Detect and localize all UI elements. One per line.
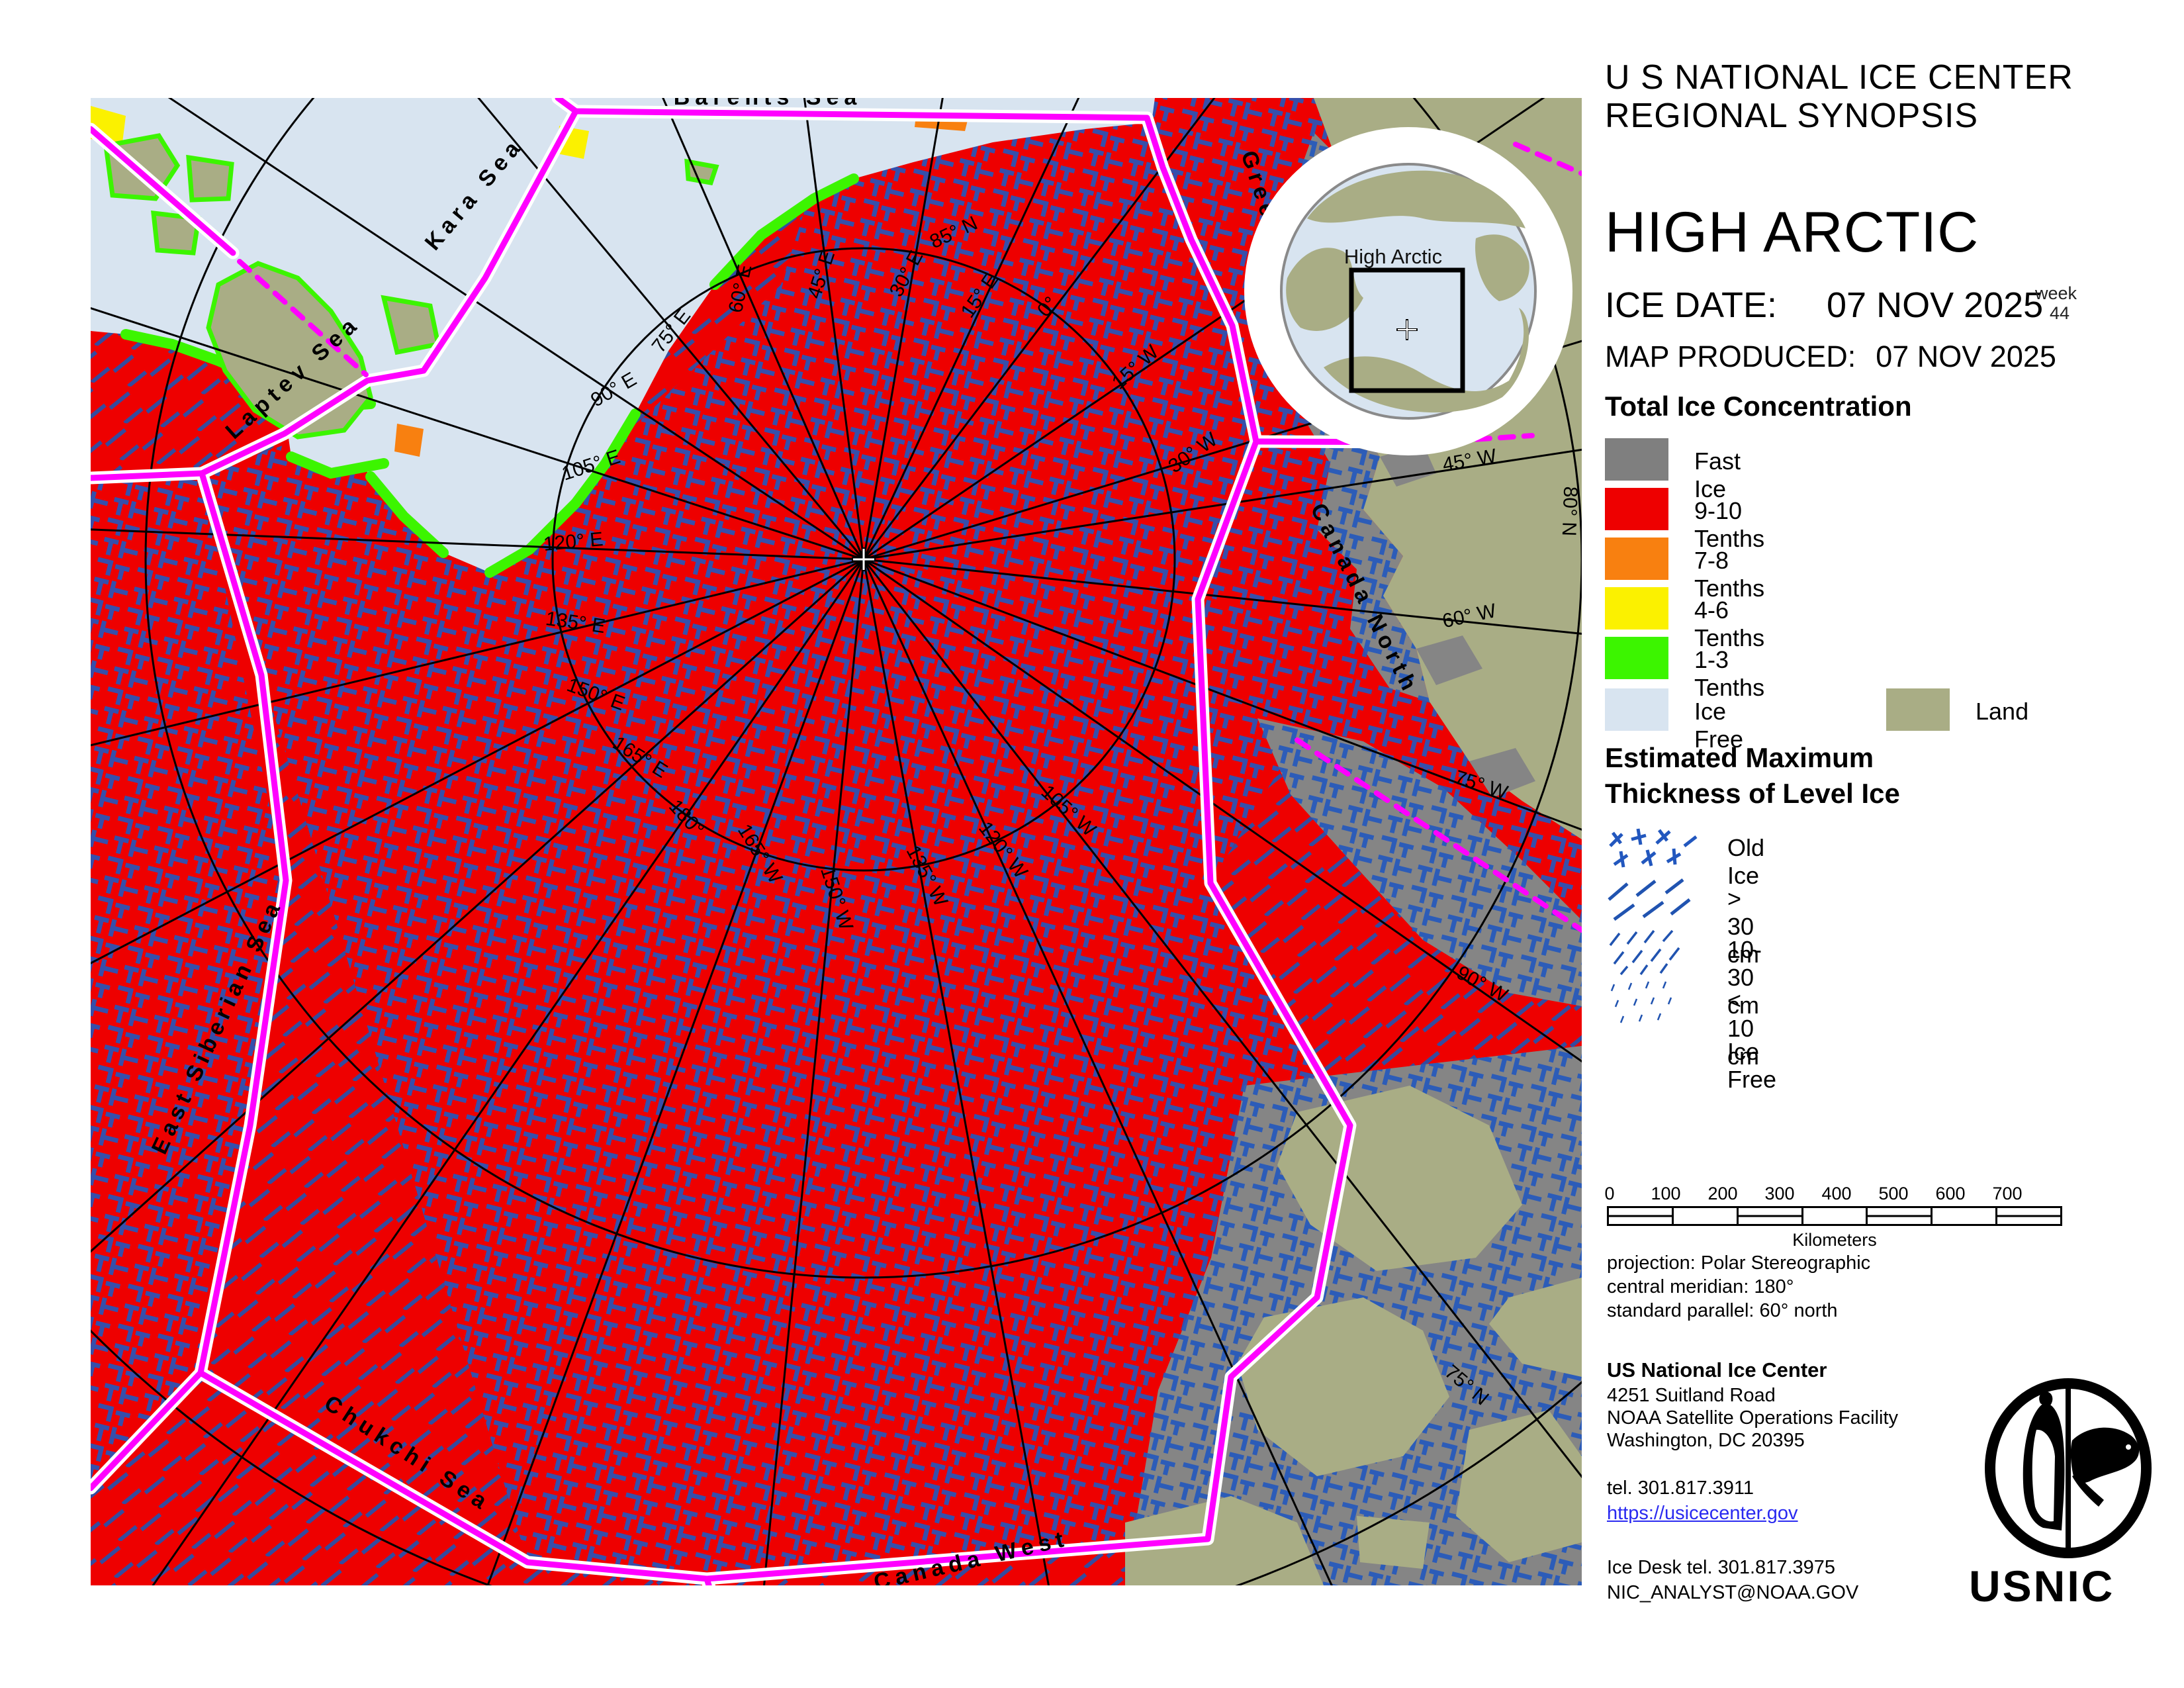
contact-email: NIC_ANALYST@NOAA.GOV	[1607, 1582, 1858, 1604]
four-six-swatch	[1605, 587, 1668, 630]
inset-label: High Arctic	[1344, 245, 1442, 268]
scalebar-unit: Kilometers	[1607, 1230, 2062, 1250]
concentration-legend-title: Total Ice Concentration	[1605, 391, 1912, 422]
old-ice-thickness-label: Old Ice	[1727, 834, 1764, 890]
thickness-row-gt30: > 30 cm	[1605, 877, 1704, 923]
contact-tel: tel. 301.817.3911	[1607, 1477, 1754, 1499]
projection-line2: central meridian: 180°	[1607, 1275, 1870, 1299]
scalebar: 0 100 200 300 400 500 600 700 Kilometers	[1607, 1184, 2070, 1250]
page: Barents Sea Kara Sea Laptev Sea East Sib…	[0, 0, 2184, 1688]
scalebar-tick-0: 0	[1604, 1184, 1614, 1204]
agency-line2: REGIONAL SYNOPSIS	[1605, 97, 2073, 135]
thickness-ice-free-label: Ice Free	[1727, 1038, 1776, 1094]
scalebar-tick-200: 200	[1707, 1184, 1737, 1204]
lt10-hatch-sample	[1605, 979, 1704, 1027]
scalebar-bar	[1607, 1206, 2062, 1226]
thickness-title-line1: Estimated Maximum	[1605, 740, 1900, 776]
agency-title: U S NATIONAL ICE CENTER REGIONAL SYNOPSI…	[1605, 58, 2073, 135]
scalebar-seg	[1803, 1208, 1868, 1224]
thickness-legend-title: Estimated Maximum Thickness of Level Ice	[1605, 740, 1900, 812]
contact-name: US National Ice Center	[1607, 1358, 1827, 1382]
sea-label-barents: Barents Sea	[674, 85, 862, 110]
one-three-label: 1-3 Tenths	[1694, 646, 1764, 702]
projection-line1: projection: Polar Stereographic	[1607, 1251, 1870, 1275]
nine-ten-swatch	[1605, 488, 1668, 530]
scalebar-ticks: 0 100 200 300 400 500 600 700	[1607, 1184, 2070, 1203]
lat-label-80n: 80° N	[1558, 486, 1582, 536]
scalebar-tick-300: 300	[1764, 1184, 1794, 1204]
scalebar-tick-400: 400	[1821, 1184, 1851, 1204]
contact-address2: NOAA Satellite Operations Facility	[1607, 1407, 1898, 1429]
scalebar-tick-100: 100	[1651, 1184, 1680, 1204]
fast-ice-swatch	[1605, 438, 1668, 481]
thickness-row-old-ice: Old Ice	[1605, 826, 1704, 872]
seven-eight-swatch	[1605, 538, 1668, 580]
old-ice-hatch-sample	[1605, 826, 1704, 874]
gt30-hatch-sample	[1605, 877, 1704, 925]
thickness-title-line2: Thickness of Level Ice	[1605, 776, 1900, 812]
scalebar-tick-500: 500	[1878, 1184, 1908, 1204]
usnic-logo	[1962, 1377, 2167, 1562]
week-badge: week 44	[2035, 283, 2077, 323]
scalebar-seg	[1739, 1208, 1803, 1224]
land-swatch	[1886, 688, 1950, 731]
cm10-30-hatch-sample	[1605, 928, 1704, 976]
ice-date-value: 07 NOV 2025	[1827, 285, 2043, 326]
polar-bear-silhouette	[2071, 1428, 2139, 1483]
fast-ice-label: Fast Ice	[1694, 447, 1741, 503]
week-value: 44	[2035, 303, 2077, 323]
projection-notes: projection: Polar Stereographic central …	[1607, 1251, 1870, 1323]
contact-address3: Washington, DC 20395	[1607, 1430, 1805, 1452]
projection-line3: standard parallel: 60° north	[1607, 1299, 1870, 1323]
seven-eight-label: 7-8 Tenths	[1694, 547, 1764, 602]
ice-free-swatch	[1605, 688, 1668, 731]
nine-ten-label: 9-10 Tenths	[1694, 497, 1764, 553]
scalebar-tick-700: 700	[1992, 1184, 2022, 1204]
scalebar-tick-600: 600	[1935, 1184, 1965, 1204]
scalebar-seg	[1933, 1208, 1997, 1224]
map-produced-value: 07 NOV 2025	[1876, 340, 2056, 373]
ice-date-row: ICE DATE: 07 NOV 2025	[1605, 285, 1777, 326]
scalebar-seg	[1609, 1208, 1674, 1224]
ice-date-label: ICE DATE:	[1605, 285, 1777, 325]
region-title: HIGH ARCTIC	[1605, 200, 1979, 265]
inset-globe: High Arctic	[1244, 127, 1572, 455]
contact-address1: 4251 Suitland Road	[1607, 1385, 1776, 1407]
one-three-swatch	[1605, 637, 1668, 679]
thickness-row-10-30: 10-30 cm	[1605, 928, 1704, 974]
map-produced-row: MAP PRODUCED:07 NOV 2025	[1605, 340, 2056, 374]
land-label: Land	[1976, 698, 2028, 726]
thickness-row-lt10: < 10 cm	[1605, 979, 1704, 1025]
map-produced-label: MAP PRODUCED:	[1605, 340, 1856, 373]
four-six-label: 4-6 Tenths	[1694, 596, 1764, 652]
week-label: week	[2035, 283, 2077, 303]
usnic-wordmark: USNIC	[1969, 1561, 2115, 1611]
scalebar-seg	[1674, 1208, 1739, 1224]
scalebar-seg	[1997, 1208, 2060, 1224]
usicecenter-link[interactable]: https://usicecenter.gov	[1607, 1503, 1798, 1524]
agency-line1: U S NATIONAL ICE CENTER	[1605, 58, 2073, 97]
ice-desk-tel: Ice Desk tel. 301.817.3975	[1607, 1557, 1835, 1579]
scalebar-seg	[1868, 1208, 1933, 1224]
